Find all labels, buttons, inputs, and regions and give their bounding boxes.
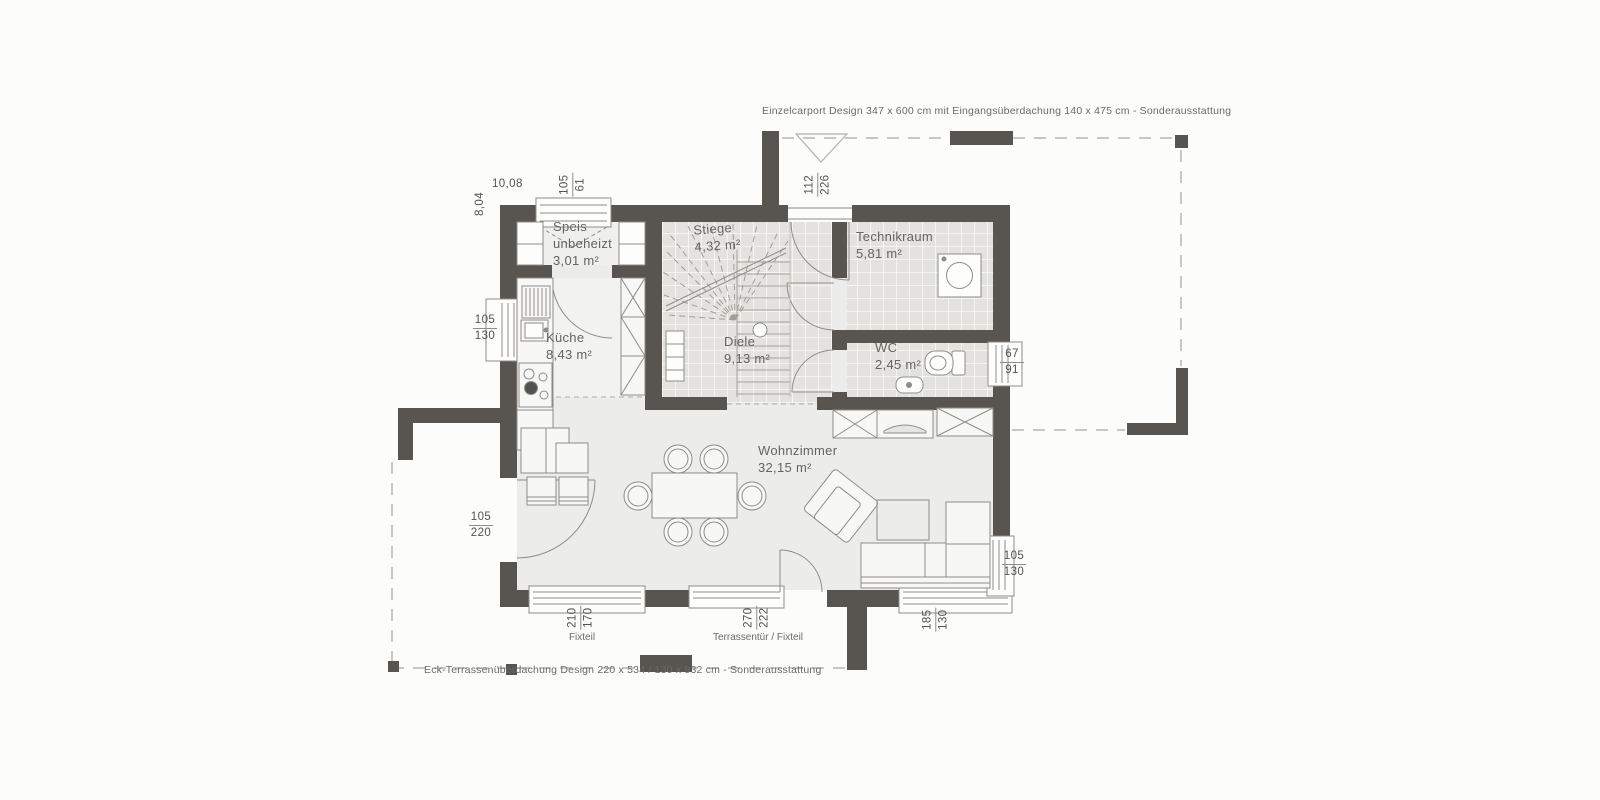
sink-icon [896, 377, 923, 393]
washing-machine-icon [938, 254, 981, 297]
terrace-wall-fin [847, 607, 867, 670]
room-label-speis: Speis unbeheizt 3,01 m² [553, 219, 612, 270]
floor-plan-drawing [0, 0, 1600, 800]
wall-jog-stub [398, 408, 413, 460]
room-label-wc: WC 2,45 m² [875, 340, 921, 374]
dim-corner-window-bottom: 185 130 [921, 603, 950, 637]
sideboard-right [937, 408, 993, 436]
tv-lowboard [877, 410, 933, 438]
dim-kitchen-window: 105 130 [470, 314, 500, 343]
dim-wc-window: 67 91 [997, 348, 1027, 377]
fridge-icon [522, 286, 550, 318]
sideboard-left [833, 410, 877, 438]
hallway-tile-floor [662, 222, 832, 404]
carport-note: Einzelcarport Design 347 x 600 cm mit Ei… [762, 105, 1231, 117]
fixteil-label: Fixteil [569, 632, 595, 643]
terrassentuer-label: Terrassentür / Fixteil [713, 632, 803, 643]
dim-speis-window: 105 61 [558, 168, 587, 202]
overall-height-dim: 8,04 [474, 192, 486, 216]
toilet-icon [925, 351, 965, 375]
dim-corner-window-right: 105 130 [999, 550, 1029, 579]
dim-side-door: 105 220 [466, 511, 496, 540]
dim-terrassentuer: 270 222 [742, 601, 771, 635]
kitchen-tall-cabinets [621, 278, 645, 395]
dim-entrance-door: 112 226 [803, 168, 832, 202]
room-label-kueche: Küche 8,43 m² [546, 330, 592, 364]
overall-width-dim: 10,08 [492, 178, 523, 190]
entrance-wall-stub [762, 131, 779, 205]
dim-fixteil: 210 170 [566, 601, 595, 635]
radiator-icon [666, 331, 684, 381]
wall-jog [398, 408, 500, 423]
dining-table [652, 473, 737, 518]
terrace-note: Eck-Terrassenüberdachung Design 220 x 53… [424, 664, 822, 676]
room-label-stiege: Stiege 4,32 m² [693, 219, 741, 256]
room-label-wohnzimmer: Wohnzimmer 32,15 m² [758, 443, 837, 477]
room-label-diele: Diele 9,13 m² [724, 334, 770, 368]
kitchen-sink-icon [521, 320, 548, 341]
floorplan-page: Einzelcarport Design 347 x 600 cm mit Ei… [0, 0, 1600, 800]
stove-icon [519, 363, 552, 407]
room-label-technikraum: Technikraum 5,81 m² [856, 229, 933, 263]
